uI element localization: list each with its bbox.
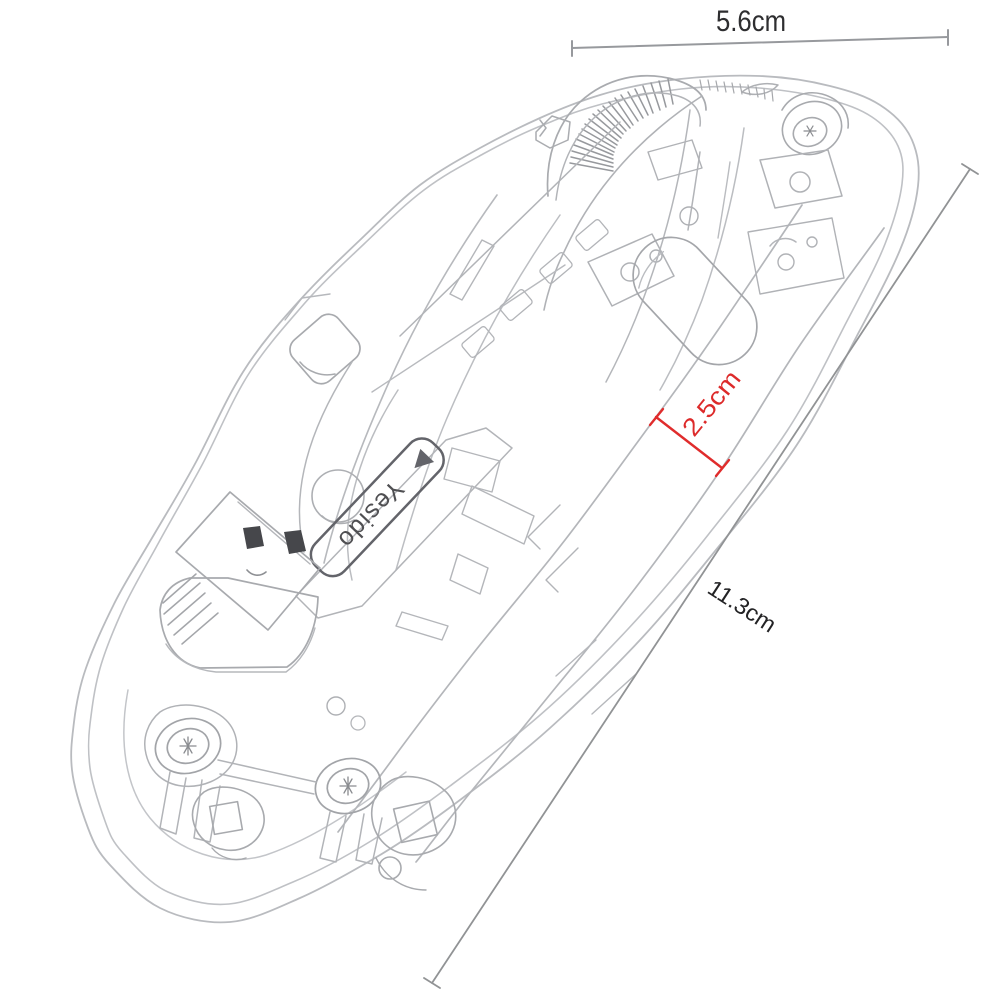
svg-text:2.5cm: 2.5cm: [677, 365, 747, 442]
svg-text:11.3cm: 11.3cm: [703, 574, 781, 637]
svg-text:5.6cm: 5.6cm: [716, 5, 786, 38]
